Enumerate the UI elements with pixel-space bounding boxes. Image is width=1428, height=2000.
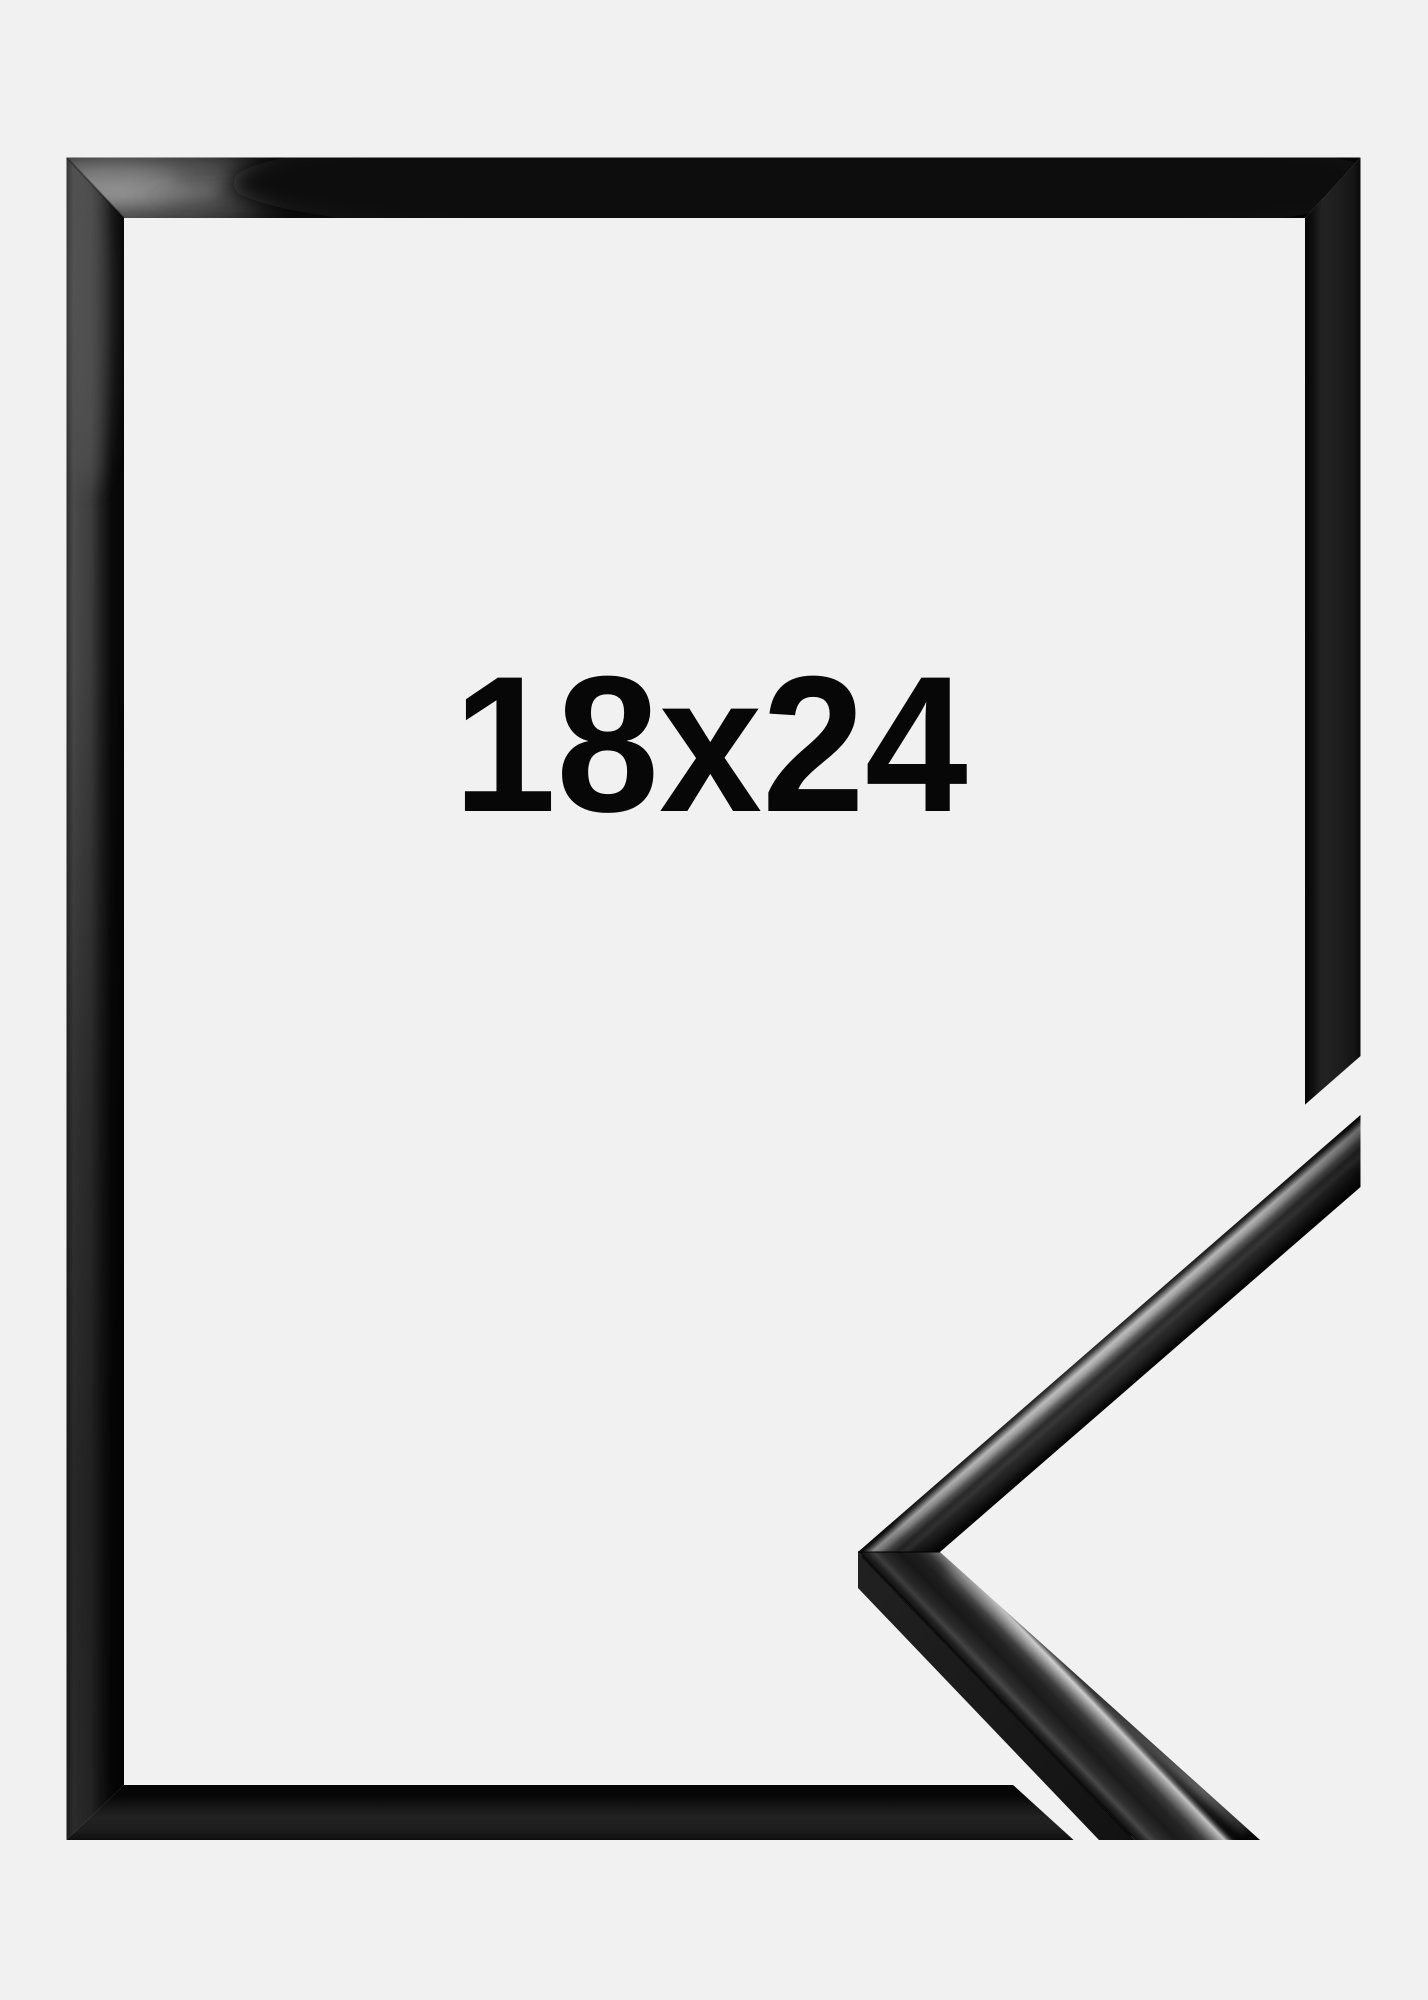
svg-text:18x24: 18x24 bbox=[453, 636, 967, 853]
